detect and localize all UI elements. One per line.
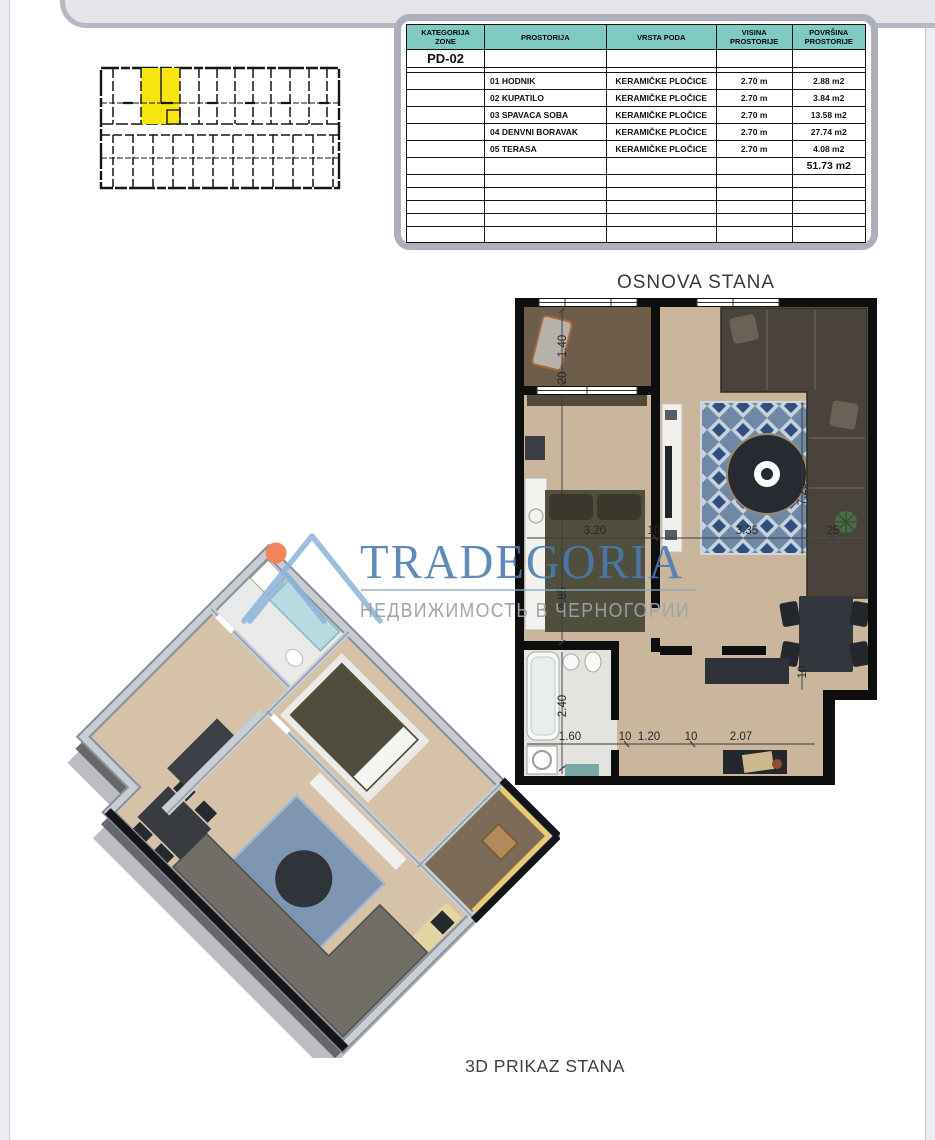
- col-header-povrsina: POVRŠINA PROSTORIJE: [792, 25, 865, 50]
- tv: [665, 446, 672, 518]
- dim-label: 7.25: [797, 483, 809, 505]
- room-name: 05 TERASA: [485, 141, 607, 158]
- empty-row: [407, 214, 866, 227]
- key-plan-units-bottom: [113, 135, 333, 188]
- empty-row: [407, 188, 866, 201]
- empty-row: [407, 175, 866, 188]
- floor-type: KERAMIČKE PLOČICE: [606, 107, 716, 124]
- floor-type: KERAMIČKE PLOČICE: [606, 90, 716, 107]
- sofa-pillow: [829, 400, 859, 430]
- table-row: 05 TERASA KERAMIČKE PLOČICE 2.70 m 4.08 …: [407, 141, 866, 158]
- floor-type: KERAMIČKE PLOČICE: [606, 141, 716, 158]
- table-row: 02 KUPATILO KERAMIČKE PLOČICE 2.70 m 3.8…: [407, 90, 866, 107]
- wardrobe: [705, 658, 789, 684]
- room-area: 27.74 m2: [792, 124, 865, 141]
- col-header-kategorija-zone: KATEGORIJA ZONE: [407, 25, 485, 50]
- empty-row: [407, 201, 866, 214]
- floor-plan-2d: 1.40 20 4.85 2.40 3.20 10 3.35 25 7.25 1…: [515, 298, 877, 788]
- key-plan-inner-lines: [101, 103, 339, 158]
- dim-label: 25: [827, 525, 840, 537]
- nightstand: [525, 436, 545, 460]
- render-3d-title: 3D PRIKAZ STANA: [295, 1056, 795, 1077]
- room-area: 3.84 m2: [792, 90, 865, 107]
- speaker: [665, 410, 677, 420]
- room-name: 04 DENVNI BORAVAK: [485, 124, 607, 141]
- pillow: [597, 494, 641, 520]
- dim-label: 3.20: [584, 525, 606, 537]
- sofa-pillow: [729, 314, 760, 345]
- floor-plan-title: OSNOVA STANA: [515, 272, 877, 294]
- dim-label: 1.40: [557, 335, 569, 357]
- dim-label: 10: [797, 666, 809, 679]
- dim-label: 1.60: [559, 731, 581, 743]
- room-area: 2.88 m2: [792, 73, 865, 90]
- coffee-table-center-dot: [761, 468, 773, 480]
- key-plan-outline: [101, 68, 339, 188]
- total-row: 51.73 m2: [407, 158, 866, 175]
- dining-table: [799, 596, 853, 672]
- pillow: [549, 494, 593, 520]
- col-header-visina: VISINA PROSTORIJE: [716, 25, 792, 50]
- table-row: 04 DENVNI BORAVAK KERAMIČKE PLOČICE 2.70…: [407, 124, 866, 141]
- room-name: 01 HODNIK: [485, 73, 607, 90]
- render-body: [58, 549, 558, 1049]
- zone-code: PD-02: [407, 50, 485, 68]
- room-height: 2.70 m: [716, 90, 792, 107]
- sink: [563, 654, 579, 670]
- col-header-prostorija: PROSTORIJA: [485, 25, 607, 50]
- building-key-plan: [95, 58, 345, 198]
- room-height: 2.70 m: [716, 124, 792, 141]
- total-area: 51.73 m2: [792, 158, 865, 175]
- apartment-3d-render: [55, 538, 560, 1058]
- bath-mat: [565, 764, 599, 776]
- spec-table-frame: KATEGORIJA ZONE PROSTORIJA VRSTA PODA VI…: [394, 14, 878, 250]
- right-margin-strip: [925, 0, 935, 1140]
- dim-label: 10: [648, 525, 661, 537]
- dim-label: 10: [685, 731, 698, 743]
- floor-type: KERAMIČKE PLOČICE: [606, 124, 716, 141]
- table-row: 03 SPAVACA SOBA KERAMIČKE PLOČICE 2.70 m…: [407, 107, 866, 124]
- dim-label: 20: [557, 372, 569, 385]
- toilet: [585, 652, 601, 672]
- page: KATEGORIJA ZONE PROSTORIJA VRSTA PODA VI…: [0, 0, 935, 1140]
- dim-label: 2.07: [730, 731, 752, 743]
- dim-label: 3.35: [736, 525, 758, 537]
- table-row: 01 HODNIK KERAMIČKE PLOČICE 2.70 m 2.88 …: [407, 73, 866, 90]
- left-margin-strip: [0, 0, 10, 1140]
- floor-type: KERAMIČKE PLOČICE: [606, 73, 716, 90]
- dim-label: 10: [619, 731, 632, 743]
- curtain: [527, 395, 647, 406]
- room-name: 03 SPAVACA SOBA: [485, 107, 607, 124]
- header-row: KATEGORIJA ZONE PROSTORIJA VRSTA PODA VI…: [407, 25, 866, 50]
- room-height: 2.70 m: [716, 107, 792, 124]
- speaker: [665, 530, 677, 540]
- room-height: 2.70 m: [716, 73, 792, 90]
- room-area: 13.58 m2: [792, 107, 865, 124]
- dim-label: 1.20: [638, 731, 660, 743]
- zone-row: PD-02: [407, 50, 866, 68]
- empty-row: [407, 227, 866, 243]
- room-spec-table: KATEGORIJA ZONE PROSTORIJA VRSTA PODA VI…: [406, 24, 866, 243]
- room-area: 4.08 m2: [792, 141, 865, 158]
- room-height: 2.70 m: [716, 141, 792, 158]
- room-name: 02 KUPATILO: [485, 90, 607, 107]
- col-header-vrsta-poda: VRSTA PODA: [606, 25, 716, 50]
- desk-ball: [772, 759, 782, 769]
